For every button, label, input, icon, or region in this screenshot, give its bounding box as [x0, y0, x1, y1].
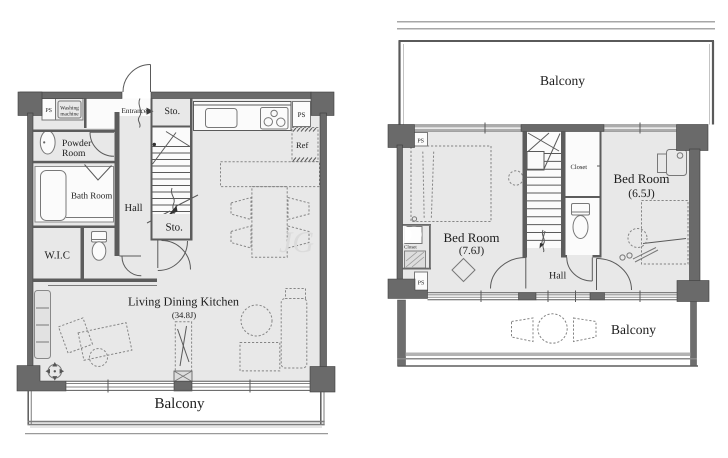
svg-text:W.I.C: W.I.C	[45, 250, 70, 262]
svg-text:Hall: Hall	[549, 271, 566, 282]
svg-text:Balcony: Balcony	[540, 73, 585, 88]
svg-text:Balcony: Balcony	[155, 396, 205, 412]
svg-text:(34.8J): (34.8J)	[172, 310, 196, 320]
svg-text:Sto.: Sto.	[165, 106, 181, 117]
svg-text:Living Dining Kitchen: Living Dining Kitchen	[128, 295, 239, 309]
svg-text:Sto.: Sto.	[166, 222, 184, 234]
svg-text:PS: PS	[418, 281, 425, 287]
svg-text:PS: PS	[45, 108, 52, 114]
svg-text:machine: machine	[60, 112, 79, 118]
svg-text:Closet: Closet	[571, 164, 588, 171]
svg-text:JG: JG	[279, 226, 314, 259]
svg-text:Bath Room: Bath Room	[71, 191, 112, 201]
svg-text:Bed Room: Bed Room	[444, 230, 500, 245]
svg-text:PS: PS	[417, 139, 424, 145]
svg-text:Closet: Closet	[404, 245, 417, 251]
svg-text:(6.5J): (6.5J)	[628, 188, 655, 200]
svg-text:(7.6J): (7.6J)	[459, 245, 485, 257]
svg-text:Ref: Ref	[296, 140, 308, 150]
svg-text:PS: PS	[298, 111, 306, 119]
svg-text:Entrance: Entrance	[122, 107, 148, 115]
svg-text:Room: Room	[62, 148, 86, 159]
svg-text:Balcony: Balcony	[611, 322, 656, 337]
svg-text:Hall: Hall	[125, 203, 143, 214]
svg-text:Bed Room: Bed Room	[614, 171, 670, 186]
